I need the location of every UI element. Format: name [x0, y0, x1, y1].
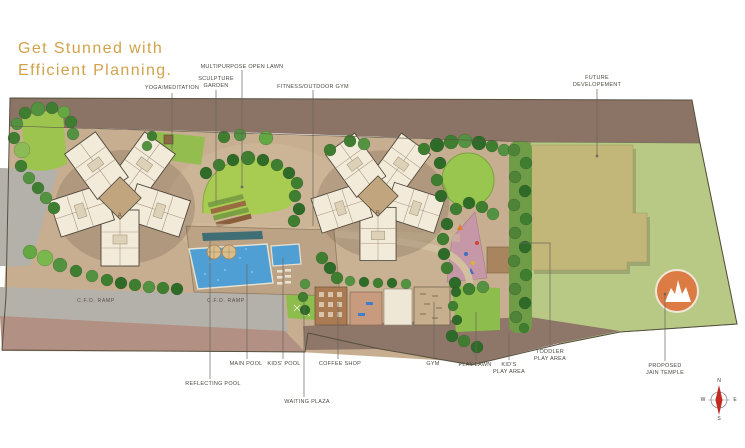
label-reflecting-pool: REFLECTING POOL [185, 381, 240, 388]
compass-north-label: N [717, 378, 721, 384]
label-waiting-plaza: WAITING PLAZA [284, 399, 330, 406]
label-coffee-shop: COFFEE SHOP [319, 361, 361, 368]
label-main-pool: MAIN POOL [230, 361, 263, 368]
label-kids-play-area: KID'S PLAY AREA [493, 362, 525, 377]
hall-building [384, 289, 412, 325]
label-cfo-ramp-2: C.F.O. RAMP [207, 298, 245, 304]
compass-rose [708, 385, 730, 415]
spa-building [350, 292, 382, 325]
label-proposed-jain-temple: PROPOSED JAIN TEMPLE [646, 363, 684, 378]
label-fitness-outdoor-gym: FITNESS/OUTDOOR GYM [277, 84, 349, 91]
page-title-line1: Get Stunned with [18, 38, 172, 60]
tower-a-label: A [117, 213, 122, 220]
compass-east-label: E [733, 397, 736, 403]
label-gym: GYM [426, 361, 439, 368]
label-kids-pool: KIDS' POOL [267, 361, 300, 368]
tower-b-label: B [375, 211, 380, 218]
label-play-lawn: PLAY LAWN [458, 362, 491, 369]
kids-pool-shape [271, 244, 301, 266]
label-yoga-meditation: YOGA/MEDITATION [145, 85, 199, 92]
label-sculpture-garden: SCULPTURE GARDEN [198, 76, 234, 91]
page-title: Get Stunned with Efficient Planning. [18, 38, 172, 83]
gym-building [414, 287, 450, 325]
label-multipurpose-open-lawn: MULTIPURPOSE OPEN LAWN [201, 64, 284, 71]
label-cfo-ramp-1: C.F.O. RAMP [77, 298, 115, 304]
page-title-line2: Efficient Planning. [18, 60, 172, 82]
jain-temple-marker [656, 270, 698, 312]
masterplan-poster: Get Stunned with Efficient Planning. YOG… [0, 0, 745, 448]
label-toddler-play-area: TODDLER PLAY AREA [534, 349, 566, 364]
label-future-development: FUTURE DEVELOPEMENT [573, 75, 621, 90]
compass-west-label: W [701, 397, 706, 403]
future-development-building [531, 145, 650, 274]
compass-south-label: S [717, 416, 720, 422]
compass-needle-icon [716, 385, 723, 415]
